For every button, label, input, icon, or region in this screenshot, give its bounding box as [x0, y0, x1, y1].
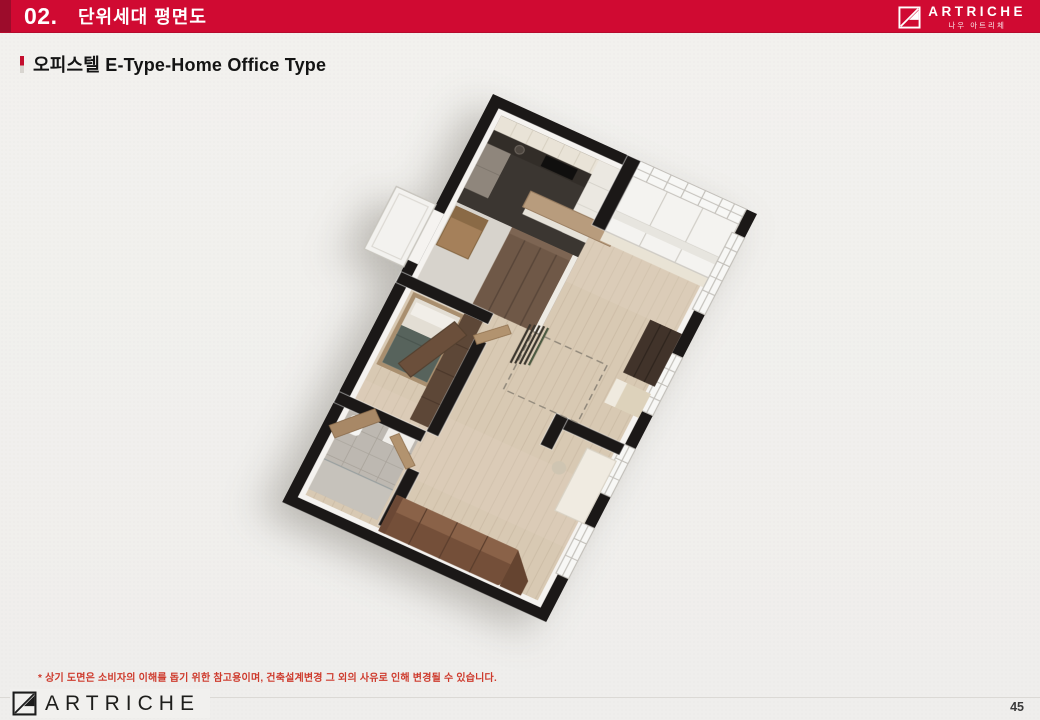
page-number: 45	[1010, 700, 1024, 714]
slide: 02. 단위세대 평면도 ARTRICHE 나우 아트리체 오피스텔 E-Typ…	[0, 0, 1040, 720]
footer-brand-name: ARTRICHE	[45, 692, 200, 716]
disclaimer-text: * 상기 도면은 소비자의 이해를 돕기 위한 참고용이며, 건축설계변경 그 …	[38, 669, 497, 684]
artriche-logo-icon	[12, 691, 37, 716]
floor-plan-rendering	[0, 0, 1040, 720]
brand-logo-footer: ARTRICHE	[10, 689, 210, 718]
